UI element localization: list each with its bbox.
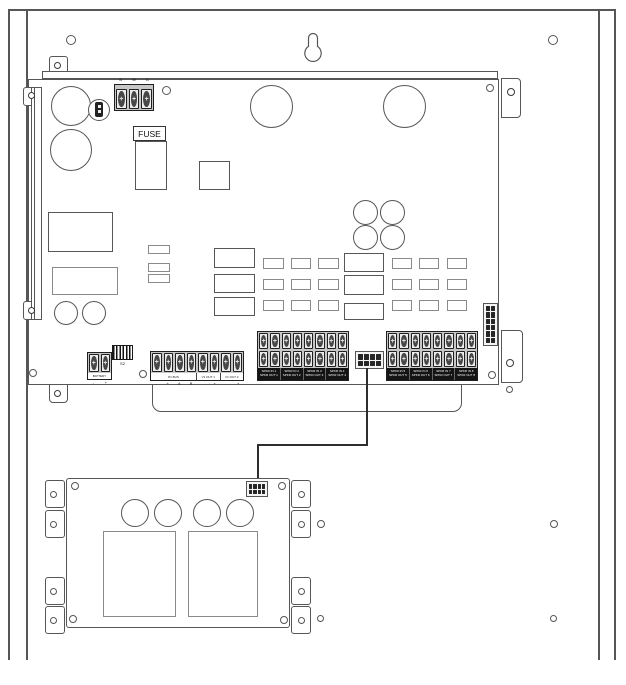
dip-switch-s2 (112, 345, 133, 360)
terminal-screw (175, 353, 185, 372)
header-pin (358, 361, 363, 367)
io-mark: A (174, 382, 186, 386)
header-pin (258, 484, 261, 489)
header-pin (486, 306, 490, 311)
terminal-screw (129, 89, 140, 109)
amp-corner-hole (278, 482, 286, 490)
component-rect (392, 300, 412, 311)
ac-label-w: W (127, 77, 140, 82)
capacitor-small-2 (82, 301, 106, 325)
amp-ear-hole (50, 617, 57, 624)
amp-ear-hole (298, 491, 305, 498)
relay-rect (344, 303, 384, 320)
board-hole-top-left (162, 86, 171, 95)
ac-label-b: B (114, 77, 127, 82)
cabinet-mount-hole-top-left (66, 35, 76, 45)
ribbon-header-amp (246, 481, 268, 497)
capacitor-large-1 (51, 86, 91, 126)
header-pin (486, 338, 490, 343)
battery-mark-neg: - (87, 381, 100, 385)
cabinet-top-edge (8, 9, 616, 11)
terminal-screw (187, 353, 197, 372)
board-hole-bottom-mid (139, 370, 147, 378)
chassis-tab-bottom-left-hole (54, 390, 61, 397)
amp-ear-hole (50, 521, 57, 528)
amp-capacitor-1 (121, 499, 149, 527)
terminal-screw (422, 333, 431, 349)
terminal-screw (456, 351, 465, 367)
component-rect (263, 279, 284, 290)
terminal-screw (315, 351, 324, 367)
terminal-screw (282, 351, 291, 367)
board-hole-bottom-right (488, 371, 496, 379)
amp-transformer-1 (103, 531, 176, 617)
component-rect (148, 245, 170, 254)
fuse-label-box: FUSE (133, 126, 166, 141)
keyhole-mount-slot (302, 31, 324, 65)
amp-corner-hole (280, 616, 288, 624)
io-group-label: V1 OUT 1 (197, 373, 221, 380)
terminal-screw (198, 353, 208, 372)
io-mark: + (209, 382, 221, 386)
io-group-label: V1 OUT 2 (221, 373, 244, 380)
cabinet-hole-mid-left (317, 520, 325, 528)
terminal-screw (422, 351, 431, 367)
terminal-screw (411, 351, 420, 367)
component-rect (419, 279, 439, 290)
header-pin (491, 306, 495, 311)
spkr-group-label: SPKR IN 1SPKR OUT 1 (258, 368, 280, 380)
terminal-screw (210, 353, 220, 372)
cabinet-left-outer-wall (8, 9, 10, 660)
chassis-top-flange (42, 71, 498, 79)
amp-capacitor-2 (154, 499, 182, 527)
capacitor-quad-4 (380, 225, 405, 250)
component-rect (263, 258, 284, 269)
terminal-screw (221, 353, 231, 372)
battery-terminal-block: BATTERY (87, 352, 112, 380)
cabinet-hole-mid-right (550, 520, 558, 528)
io-mark: + (162, 382, 174, 386)
component-rect (447, 258, 467, 269)
ac-label-g: G (141, 77, 154, 82)
hinge-rail-inner-line (34, 88, 35, 319)
header-pin (491, 319, 495, 324)
ac-terminal-labels: B W G (114, 77, 154, 82)
dip-switch-label: S2 (112, 361, 133, 366)
header-pin (376, 361, 381, 367)
cabinet-right-outer-wall (614, 9, 616, 660)
battery-mark-pos: + (100, 381, 113, 385)
header-pin (376, 354, 381, 360)
header-pin (249, 490, 252, 495)
relay-rect (214, 274, 255, 293)
cabinet-hole-right-side (506, 386, 513, 393)
header-pin (364, 361, 369, 367)
cabinet-hole-bottom-right (550, 615, 557, 622)
terminal-screw (233, 353, 243, 372)
header-pin (486, 312, 490, 317)
wiring-diagram: B W G FUSE (0, 0, 626, 685)
amp-ear-hole (298, 588, 305, 595)
chassis-tab-right-top-hole (507, 88, 515, 96)
board-hole-top-right (486, 84, 494, 92)
speaker-terminal-block-b: SPKR IN 5SPKR OUT 5 SPKR IN 6SPKR OUT 6 … (386, 331, 478, 381)
chassis-tab-right-top (501, 78, 521, 118)
amp-ear-hole (50, 491, 57, 498)
header-pin (486, 319, 490, 324)
header-pin (249, 484, 252, 489)
capacitor-small-1 (54, 301, 78, 325)
header-pin (491, 312, 495, 317)
ac-terminal-block (114, 84, 154, 111)
terminal-screw (116, 89, 127, 109)
transformer-left-2 (52, 267, 118, 295)
terminal-screw (282, 333, 291, 349)
chassis-bracket-right-bottom (501, 330, 523, 383)
terminal-screw (338, 333, 347, 349)
ribbon-header-right (483, 303, 498, 346)
transformer-left-1 (48, 212, 113, 252)
header-pin (491, 325, 495, 330)
header-pin (258, 490, 261, 495)
terminal-screw (444, 333, 453, 349)
terminal-screw (399, 351, 408, 367)
battery-terminal-marks: - + (87, 381, 112, 385)
terminal-screw (327, 333, 336, 349)
knockout-circle-2 (383, 85, 426, 128)
header-pin (491, 338, 495, 343)
terminal-screw (411, 333, 420, 349)
terminal-screw (259, 351, 268, 367)
terminal-screw (433, 333, 442, 349)
amp-corner-hole (69, 615, 77, 623)
hinge-hole-top (28, 92, 35, 99)
terminal-screw (164, 353, 174, 372)
header-pin (253, 490, 256, 495)
terminal-screw (456, 333, 465, 349)
component-rect (291, 258, 311, 269)
io-terminal-block: P1 BUS V1 OUT 1 V1 OUT 2 (150, 351, 244, 381)
capacitor-quad-2 (380, 200, 405, 225)
terminal-screw (433, 351, 442, 367)
amp-ear-hole (298, 617, 305, 624)
header-pin (253, 484, 256, 489)
board-hole-bottom-left (29, 369, 37, 377)
header-pin (486, 325, 490, 330)
component-rect (291, 279, 311, 290)
component-rect (148, 274, 170, 283)
header-pin (262, 490, 265, 495)
knockout-circle-1 (250, 85, 293, 128)
component-rect (419, 258, 439, 269)
speaker-terminal-block-a: SPKR IN 1SPKR OUT 1 SPKR IN 2SPKR OUT 2 … (257, 331, 349, 381)
battery-label: BATTERY (88, 373, 111, 379)
amp-capacitor-4 (226, 499, 254, 527)
ic-square (199, 161, 230, 190)
io-mark: - (197, 382, 209, 386)
amp-corner-hole (71, 482, 79, 490)
terminal-screw (89, 354, 99, 372)
terminal-screw (259, 333, 268, 349)
spkr-group-label: SPKR IN 7SPKR OUT 7 (432, 368, 455, 380)
terminal-screw (388, 333, 397, 349)
terminal-screw (444, 351, 453, 367)
component-rect (392, 258, 412, 269)
header-pin (364, 354, 369, 360)
amp-capacitor-3 (193, 499, 221, 527)
terminal-screw (467, 333, 476, 349)
component-rect (318, 258, 339, 269)
terminal-screw (304, 351, 313, 367)
cabinet-right-inner-wall (598, 9, 600, 660)
relay-rect (344, 253, 384, 272)
terminal-screw (467, 351, 476, 367)
terminal-screw (141, 89, 152, 109)
jumper-body (95, 102, 103, 117)
io-group-label: P1 BUS (151, 373, 197, 380)
capacitor-large-2 (50, 129, 92, 171)
chassis-bottom-shelf (152, 383, 462, 412)
relay-rect (214, 297, 255, 316)
io-terminal-marks: - + A B - + - + (150, 382, 244, 386)
relay-rect (344, 275, 384, 295)
component-rect (447, 300, 467, 311)
terminal-screw (270, 351, 279, 367)
component-rect (263, 300, 284, 311)
amp-ear-hole (50, 588, 57, 595)
terminal-screw (388, 351, 397, 367)
spkr-group-label: SPKR IN 5SPKR OUT 5 (387, 368, 409, 380)
spkr-group-label: SPKR IN 6SPKR OUT 6 (409, 368, 432, 380)
header-pin (262, 484, 265, 489)
component-rect (291, 300, 311, 311)
spkr-group-label: SPKR IN 3SPKR OUT 3 (303, 368, 326, 380)
component-rect (148, 263, 170, 272)
chassis-bracket-right-bottom-hole (506, 359, 514, 367)
spkr-group-label: SPKR IN 2SPKR OUT 2 (280, 368, 303, 380)
component-rect (419, 300, 439, 311)
terminal-screw (293, 333, 302, 349)
component-rect (447, 279, 467, 290)
ribbon-cable-horizontal (257, 444, 368, 446)
capacitor-quad-1 (353, 200, 378, 225)
io-mark: B (185, 382, 197, 386)
chassis-tab-top-left-hole (54, 62, 61, 69)
component-rect (318, 300, 339, 311)
relay-rect (214, 248, 255, 268)
terminal-screw (270, 333, 279, 349)
ribbon-cable-vertical-1 (366, 368, 368, 446)
header-pin (358, 354, 363, 360)
terminal-screw (293, 351, 302, 367)
ribbon-header-main (355, 351, 384, 369)
header-pin (491, 331, 495, 336)
terminal-screw (399, 333, 408, 349)
terminal-screw (304, 333, 313, 349)
terminal-screw (315, 333, 324, 349)
io-mark: - (150, 382, 162, 386)
component-rect (318, 279, 339, 290)
hinge-rail (31, 87, 42, 320)
cabinet-hole-bottom-left (317, 615, 324, 622)
fuse-holder (135, 141, 167, 190)
amp-ear-hole (298, 521, 305, 528)
terminal-screw (152, 353, 162, 372)
spkr-group-label: SPKR IN 8SPKR OUT 8 (454, 368, 477, 380)
cabinet-mount-hole-top-right (548, 35, 558, 45)
header-pin (370, 361, 375, 367)
terminal-screw (338, 351, 347, 367)
terminal-screw (327, 351, 336, 367)
header-pin (486, 331, 490, 336)
io-mark: + (232, 382, 244, 386)
header-pin (370, 354, 375, 360)
component-rect (392, 279, 412, 290)
io-mark: - (221, 382, 233, 386)
spkr-group-label: SPKR IN 4SPKR OUT 4 (325, 368, 348, 380)
fuse-label: FUSE (138, 129, 161, 139)
hinge-hole-bottom (28, 307, 35, 314)
capacitor-quad-3 (353, 225, 378, 250)
amp-transformer-2 (188, 531, 258, 617)
terminal-screw (101, 354, 111, 372)
